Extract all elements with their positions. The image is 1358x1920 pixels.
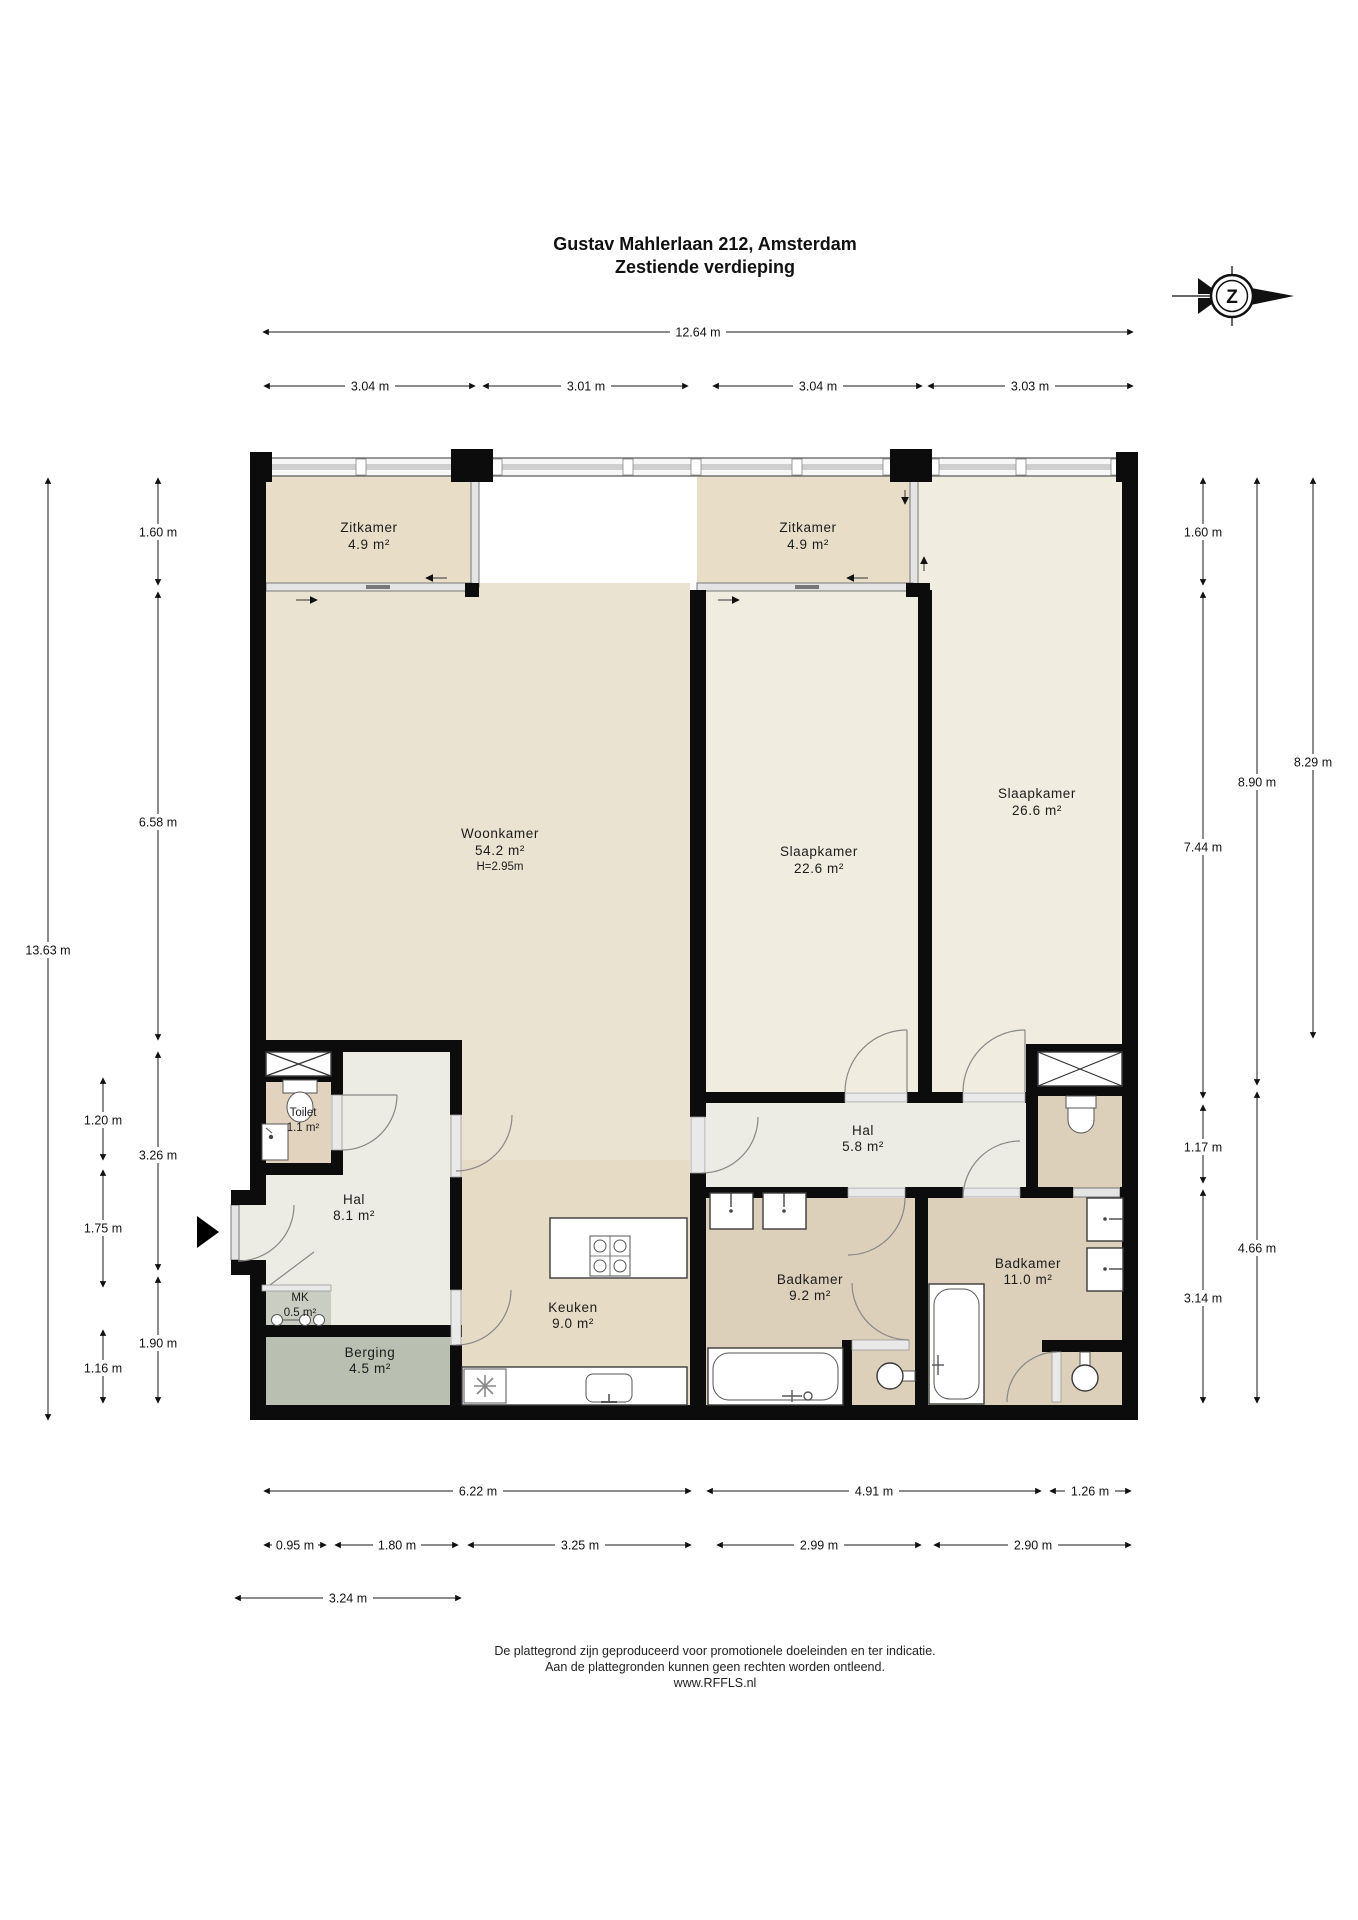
dim-top-seg2-label: 3.04 m	[799, 380, 837, 394]
label-badkamer1-name: Badkamer	[777, 1272, 843, 1287]
dim-bot-r3-0: 3.24 m	[235, 1590, 461, 1606]
dim-right-c1-0-label: 1.60 m	[1184, 526, 1222, 540]
dim-left-c3-0-label: 1.20 m	[84, 1114, 122, 1128]
label-slaapkamer2-name: Slaapkamer	[998, 786, 1076, 801]
dim-left-c2-1: 6.58 m	[133, 592, 183, 1040]
dim-right-c2-0-label: 8.90 m	[1238, 776, 1276, 790]
kitchen-island	[550, 1218, 687, 1278]
dim-left-c3-0: 1.20 m	[78, 1078, 128, 1160]
dim-bot-r1-0: 6.22 m	[264, 1483, 691, 1499]
compass: Z	[1172, 266, 1294, 326]
badkamer1-bathtub-icon	[708, 1348, 843, 1405]
dim-left-c2-2-label: 3.26 m	[139, 1149, 177, 1163]
label-woonkamer-area: 54.2 m²	[475, 843, 525, 858]
label-mk-area: 0.5 m²	[284, 1307, 317, 1319]
dim-left-c2-2: 3.26 m	[133, 1052, 183, 1270]
toilet-sink-icon	[262, 1124, 288, 1160]
dim-top-total: 12.64 m	[263, 324, 1133, 340]
floorplan-canvas: Gustav Mahlerlaan 212, Amsterdam Zestien…	[0, 0, 1358, 1920]
label-hal2-name: Hal	[852, 1123, 874, 1138]
dim-bot-r2-0-label: 0.95 m	[276, 1539, 314, 1553]
dim-right-c2-0: 8.90 m	[1232, 478, 1282, 1085]
label-badkamer2-name: Badkamer	[995, 1256, 1061, 1271]
label-slaapkamer2-area: 26.6 m²	[1012, 803, 1062, 818]
dim-bot-r2-4: 2.90 m	[934, 1537, 1131, 1553]
dim-left-c3-2: 1.16 m	[78, 1330, 128, 1403]
compass-letter: Z	[1226, 287, 1238, 308]
entrance-recess-floor	[239, 1205, 266, 1260]
dim-bot-r1-1-label: 4.91 m	[855, 1485, 893, 1499]
dim-left-c3-1: 1.75 m	[78, 1170, 128, 1287]
dim-bot-r2-2-label: 3.25 m	[561, 1539, 599, 1553]
dim-top-seg3: 3.03 m	[928, 378, 1133, 394]
zitkamer1-glass-partition	[471, 478, 479, 587]
dim-bot-r2-4-label: 2.90 m	[1014, 1539, 1052, 1553]
shaft-right	[1038, 1052, 1122, 1086]
washing-machine-fan-icon	[474, 1375, 496, 1397]
label-woonkamer-name: Woonkamer	[461, 826, 539, 841]
label-zitkamer2-name: Zitkamer	[779, 520, 836, 535]
hal1-woonkamer-door-threshold	[451, 1115, 461, 1177]
dim-top-seg1: 3.01 m	[483, 378, 688, 394]
label-woonkamer-height: H=2.95m	[477, 861, 524, 873]
label-zitkamer1-area: 4.9 m²	[348, 537, 390, 552]
label-hal1-name: Hal	[343, 1192, 365, 1207]
badkamer1-door-threshold	[848, 1188, 905, 1197]
footer-line1: De plattegrond zijn geproduceerd voor pr…	[494, 1644, 935, 1658]
dim-bot-r2-0: 0.95 m	[264, 1537, 326, 1553]
dim-bot-r2-3-label: 2.99 m	[800, 1539, 838, 1553]
label-badkamer2-area: 11.0 m²	[1004, 1272, 1053, 1287]
label-slaapkamer1-name: Slaapkamer	[780, 844, 858, 859]
label-slaapkamer1-area: 22.6 m²	[794, 861, 844, 876]
dim-left-c3-2-label: 1.16 m	[84, 1362, 122, 1376]
label-toilet-name: Toilet	[290, 1107, 318, 1119]
dim-left-c2-0-label: 1.60 m	[139, 526, 177, 540]
dim-left-c2-0: 1.60 m	[133, 478, 183, 585]
dim-right-c1-1-label: 7.44 m	[1184, 841, 1222, 855]
page-subtitle: Zestiende verdieping	[615, 257, 795, 277]
badkamer1-inner-door-threshold	[852, 1340, 909, 1350]
label-zitkamer1-name: Zitkamer	[340, 520, 397, 535]
kitchen-counter	[462, 1367, 687, 1405]
badkamer2-wallhung-toilet-icon	[1066, 1096, 1096, 1133]
badkamer2-inner-door-threshold	[1052, 1352, 1061, 1402]
footer-line2: Aan de plattegronden kunnen geen rechten…	[545, 1660, 885, 1674]
label-keuken-name: Keuken	[548, 1300, 597, 1315]
dim-top-seg2: 3.04 m	[713, 378, 922, 394]
label-toilet-area: 1.1 m²	[287, 1122, 320, 1134]
toilet-door-threshold	[332, 1095, 342, 1150]
label-berging-area: 4.5 m²	[349, 1361, 391, 1376]
dim-bot-r2-1: 1.80 m	[335, 1537, 458, 1553]
footer-line3: www.RFFLS.nl	[673, 1676, 757, 1690]
label-hal2-area: 5.8 m²	[842, 1139, 884, 1154]
zitkamer1-slider-overlap	[366, 585, 390, 589]
badkamer2-bathtub-icon	[929, 1284, 984, 1404]
room-slaapkamer2-floor	[918, 476, 1122, 1092]
dim-left-total: 13.63 m	[20, 478, 76, 1420]
dim-bot-r2-2: 3.25 m	[468, 1537, 691, 1553]
dim-right-c1-2-label: 1.17 m	[1184, 1141, 1222, 1155]
dim-left-c2-3: 1.90 m	[133, 1277, 183, 1403]
label-hal1-area: 8.1 m²	[333, 1208, 375, 1223]
dim-right-c1-2: 1.17 m	[1178, 1105, 1228, 1183]
hal2-woonkamer-door-threshold	[691, 1117, 705, 1173]
slaapkamer2-door-threshold	[963, 1093, 1025, 1102]
dim-right-c1-3-label: 3.14 m	[1184, 1292, 1222, 1306]
dim-top-total-label: 12.64 m	[675, 326, 720, 340]
label-zitkamer2-area: 4.9 m²	[787, 537, 829, 552]
footer: De plattegrond zijn geproduceerd voor pr…	[494, 1644, 935, 1690]
dim-left-total-label: 13.63 m	[25, 944, 70, 958]
dim-bot-r1-0-label: 6.22 m	[459, 1485, 497, 1499]
dim-top-seg3-label: 3.03 m	[1011, 380, 1049, 394]
label-mk-name: MK	[291, 1292, 309, 1304]
badkamer2-glass-panel	[1073, 1188, 1120, 1197]
entrance-glass-door	[231, 1205, 239, 1260]
dim-left-c2-3-label: 1.90 m	[139, 1337, 177, 1351]
page-title: Gustav Mahlerlaan 212, Amsterdam	[553, 234, 856, 254]
label-badkamer1-area: 9.2 m²	[789, 1288, 831, 1303]
dim-right-c2-1-label: 4.66 m	[1238, 1242, 1276, 1256]
dim-top-seg0-label: 3.04 m	[351, 380, 389, 394]
dim-top-seg0: 3.04 m	[264, 378, 475, 394]
dim-right-c1-3: 3.14 m	[1178, 1190, 1228, 1403]
label-berging-name: Berging	[345, 1345, 396, 1360]
floorplan-page: Gustav Mahlerlaan 212, Amsterdam Zestien…	[0, 0, 1358, 1920]
dim-bot-r1-2-label: 1.26 m	[1071, 1485, 1109, 1499]
dim-bot-r3-0-label: 3.24 m	[329, 1592, 367, 1606]
label-keuken-area: 9.0 m²	[552, 1316, 594, 1331]
dim-bot-r2-3: 2.99 m	[717, 1537, 921, 1553]
dim-left-c2-1-label: 6.58 m	[139, 816, 177, 830]
dim-right-c1-0: 1.60 m	[1178, 478, 1228, 585]
mk-door-threshold	[262, 1285, 331, 1291]
slaapkamer1-door-threshold	[845, 1093, 907, 1102]
berging-door-threshold	[451, 1290, 461, 1345]
entrance-arrow-icon	[197, 1216, 219, 1248]
dim-left-c3-1-label: 1.75 m	[84, 1222, 122, 1236]
dim-top-seg1-label: 3.01 m	[567, 380, 605, 394]
dim-right-c3-0-label: 8.29 m	[1294, 756, 1332, 770]
dim-bot-r1-2: 1.26 m	[1050, 1483, 1131, 1499]
dim-right-c1-1: 7.44 m	[1178, 592, 1228, 1098]
dim-bot-r1-1: 4.91 m	[707, 1483, 1041, 1499]
dim-right-c3-0: 8.29 m	[1288, 478, 1338, 1038]
dim-bot-r2-1-label: 1.80 m	[378, 1539, 416, 1553]
shaft-left	[266, 1052, 331, 1076]
zitkamer2-slider-overlap	[795, 585, 819, 589]
badkamer2-door-threshold	[963, 1188, 1020, 1197]
zitkamer2-glass-partition	[910, 478, 918, 587]
room-slaapkamer1-floor	[706, 590, 918, 1092]
dim-right-c2-1: 4.66 m	[1232, 1092, 1282, 1403]
